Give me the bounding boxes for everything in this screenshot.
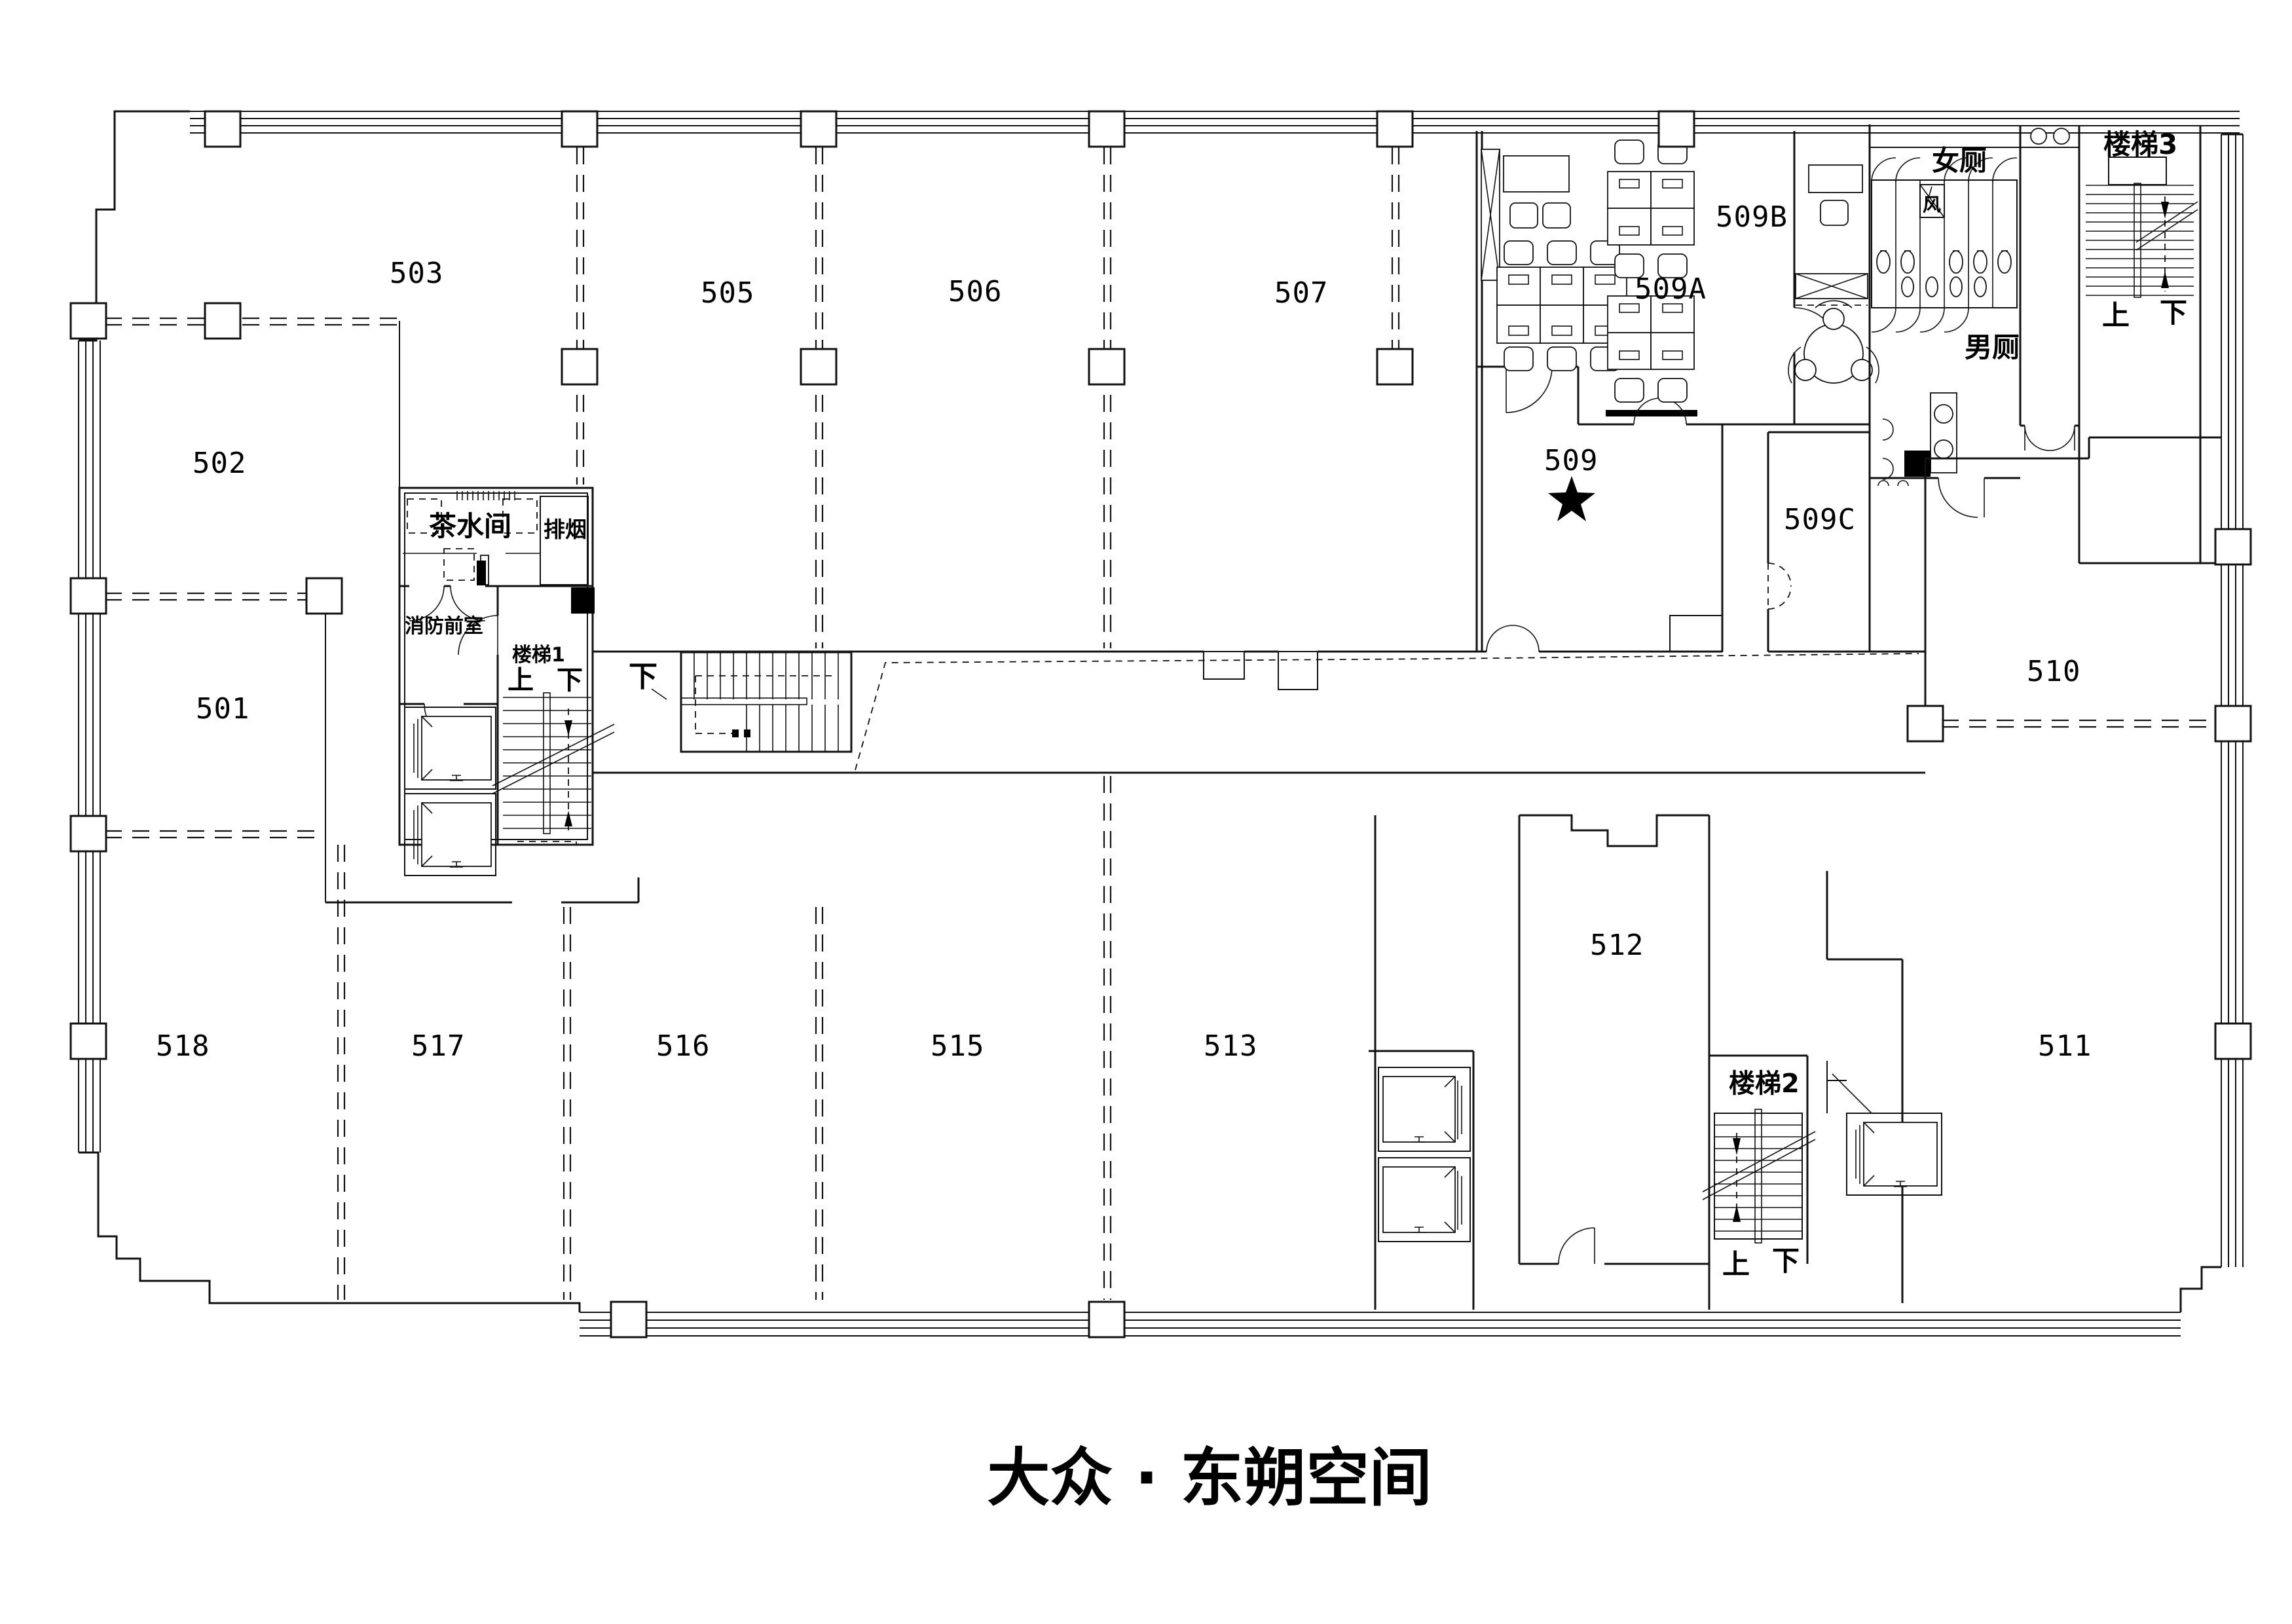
room-label-505: 505 [701,276,754,310]
room-512-walls [1519,815,1709,1264]
corridor-stair-down-label: 下 [629,660,657,693]
corridor [593,625,1925,773]
male-toilet-label: 男厕 [1965,331,2020,363]
room-509-walls [1670,424,1870,652]
floor-plan-canvas: 下 茶水间 排烟 消防前室 [0,0,2292,1624]
stair2-label: 楼梯2 [1729,1069,1800,1099]
room-label-507: 507 [1274,276,1328,310]
room-label-516: 516 [656,1029,710,1063]
drawing-title: 大众 · 东朔空间 [987,1441,1432,1515]
stair3-up-label: 上 [2102,299,2130,331]
room-label-510: 510 [2027,655,2080,688]
stair1-up-label: 上 [508,665,534,695]
core-block: 茶水间 排烟 消防前室 楼梯1 上 下 [399,488,614,876]
stair2-up-label: 上 [1722,1248,1750,1280]
stair2-block: 楼梯2 上 下 [1703,1056,1815,1310]
stair3-label: 楼梯3 [2103,128,2177,160]
elevators-513 [1369,815,1473,1310]
star-icon [1548,476,1595,521]
stair3-block: 楼梯3 上 下 [2020,126,2221,563]
room-label-509: 509 [1544,444,1598,477]
room-510-511-walls [1827,437,2221,1303]
room-label-512: 512 [1590,929,1644,962]
room-label-502: 502 [193,447,246,480]
room-509-star [1548,476,1595,521]
stair2-down-label: 下 [1772,1245,1800,1277]
office-block [1477,131,1879,652]
room-label-509b: 509B [1716,200,1788,234]
room-label-509c: 509C [1784,503,1856,536]
fire-lobby-label: 消防前室 [405,615,483,638]
stair3-down-label: 下 [2160,297,2187,329]
vent-shaft-label: 风 [1923,194,1941,215]
smoke-exhaust-label: 排烟 [544,517,587,542]
private-office-furniture [1788,165,1879,383]
room-label-506: 506 [948,275,1002,308]
stair1-down-label: 下 [557,665,583,695]
tea-room-label: 茶水间 [429,510,511,542]
room-label-501: 501 [196,692,250,726]
room-label-503: 503 [390,257,443,290]
room-label-511: 511 [2038,1029,2092,1063]
room-label-518: 518 [156,1029,210,1063]
stair1-label: 楼梯1 [512,644,565,667]
female-toilet-label: 女厕 [1932,145,1987,177]
room-label-509a: 509A [1635,272,1707,306]
room-label-517: 517 [411,1029,465,1063]
room-label-513: 513 [1204,1029,1257,1063]
corridor-stair: 下 [629,652,851,752]
room-label-515: 515 [931,1029,984,1063]
